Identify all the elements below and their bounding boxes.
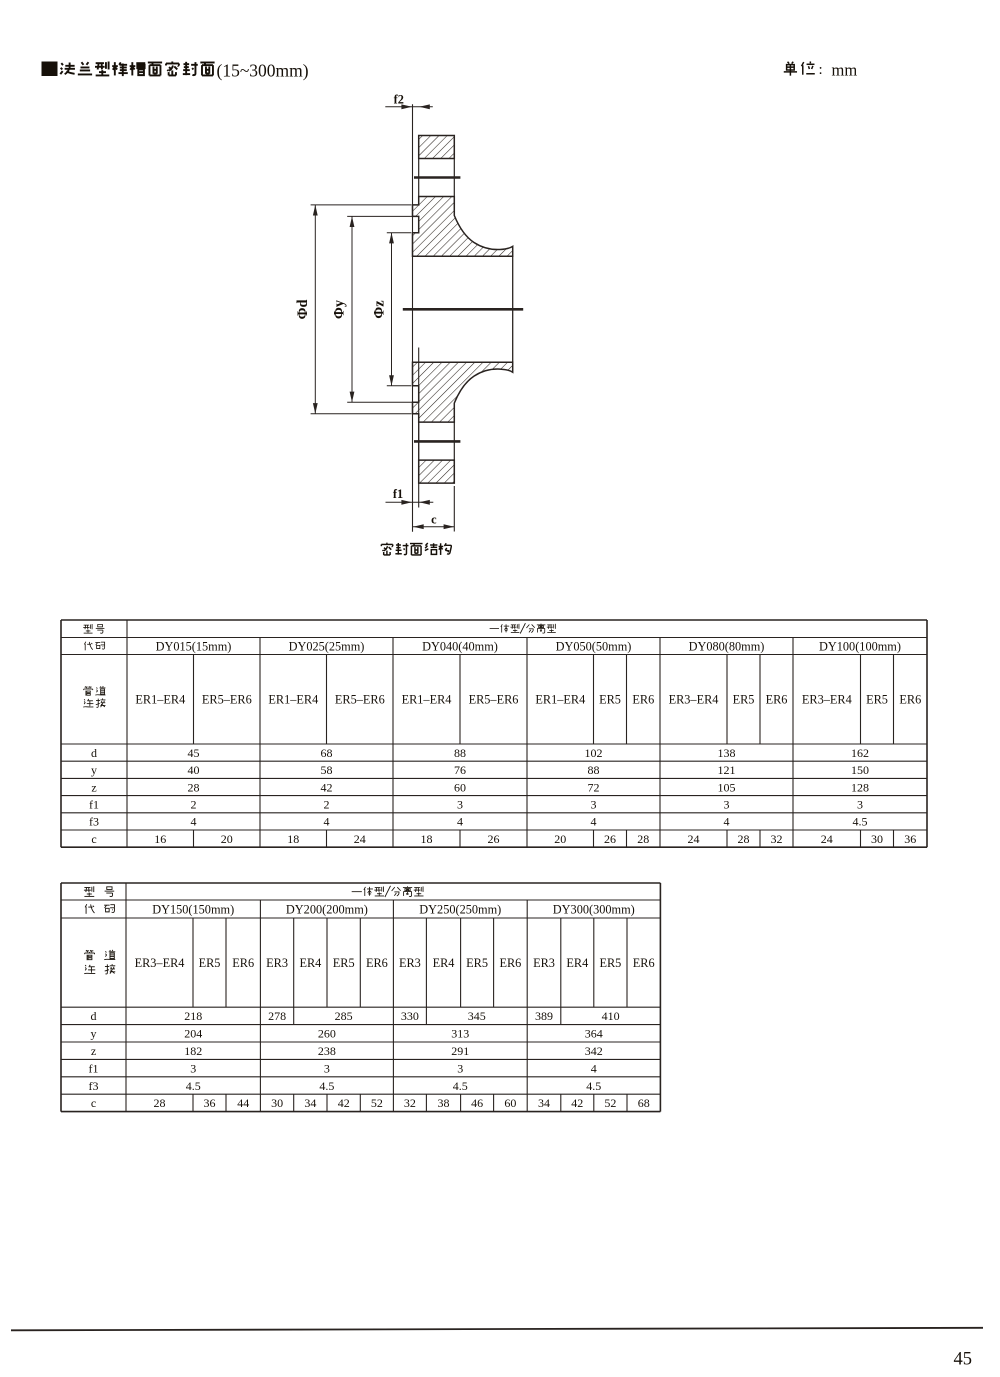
svg-text:ER6: ER6 <box>632 693 654 707</box>
svg-text:18: 18 <box>421 832 433 846</box>
svg-text:46: 46 <box>471 1096 483 1110</box>
svg-text:ER6: ER6 <box>633 956 655 970</box>
svg-text:f1: f1 <box>393 487 403 501</box>
svg-text:ER6: ER6 <box>899 693 921 707</box>
svg-text:2: 2 <box>191 798 197 812</box>
svg-text:DY015(15mm): DY015(15mm) <box>156 639 232 653</box>
svg-text:16: 16 <box>154 832 166 846</box>
svg-text:28: 28 <box>188 780 200 794</box>
svg-text:3: 3 <box>457 1061 463 1075</box>
svg-text:DY250(250mm): DY250(250mm) <box>419 902 501 916</box>
svg-text:105: 105 <box>718 780 736 794</box>
svg-text:DY040(40mm): DY040(40mm) <box>422 639 498 653</box>
svg-text:28: 28 <box>738 832 750 846</box>
svg-text:ER1–ER4: ER1–ER4 <box>402 693 452 707</box>
svg-text:291: 291 <box>451 1044 469 1058</box>
svg-text:34: 34 <box>304 1096 316 1110</box>
svg-text:z: z <box>91 1044 96 1058</box>
svg-text:26: 26 <box>488 832 500 846</box>
svg-text:ER1–ER4: ER1–ER4 <box>135 693 185 707</box>
svg-text:ER3–ER4: ER3–ER4 <box>135 956 185 970</box>
svg-text:58: 58 <box>321 763 333 777</box>
svg-text:DY300(300mm): DY300(300mm) <box>553 902 635 916</box>
svg-text:DY080(80mm): DY080(80mm) <box>689 639 765 653</box>
svg-text:4: 4 <box>591 1061 597 1075</box>
svg-text:76: 76 <box>454 763 466 777</box>
svg-text:121: 121 <box>718 763 736 777</box>
svg-text::: : <box>819 62 823 78</box>
svg-text:DY200(200mm): DY200(200mm) <box>286 902 368 916</box>
svg-text:ER3: ER3 <box>266 956 288 970</box>
svg-text:42: 42 <box>338 1096 350 1110</box>
svg-text:f3: f3 <box>89 1079 99 1093</box>
svg-text:c: c <box>431 512 437 526</box>
svg-text:313: 313 <box>451 1027 469 1041</box>
svg-text:4: 4 <box>591 815 597 829</box>
svg-text:102: 102 <box>585 746 603 760</box>
svg-text:y: y <box>91 763 97 777</box>
svg-text:204: 204 <box>184 1027 202 1041</box>
svg-text:f2: f2 <box>394 92 404 106</box>
svg-text:ER3: ER3 <box>399 956 421 970</box>
svg-text:128: 128 <box>851 780 869 794</box>
svg-text:ER4: ER4 <box>566 956 588 970</box>
svg-text:ER3–ER4: ER3–ER4 <box>669 693 719 707</box>
svg-text:218: 218 <box>184 1009 202 1023</box>
svg-text:182: 182 <box>184 1044 202 1058</box>
svg-text:72: 72 <box>588 780 600 794</box>
svg-text:y: y <box>91 1027 97 1041</box>
svg-text:d: d <box>91 1009 97 1023</box>
svg-text:238: 238 <box>318 1044 336 1058</box>
svg-text:42: 42 <box>571 1096 583 1110</box>
svg-text:345: 345 <box>468 1009 486 1023</box>
svg-text:ER1–ER4: ER1–ER4 <box>268 693 318 707</box>
svg-text:ER6: ER6 <box>366 956 388 970</box>
svg-text:z: z <box>91 780 96 794</box>
svg-text:285: 285 <box>335 1009 353 1023</box>
svg-text:ER1–ER4: ER1–ER4 <box>535 693 585 707</box>
svg-text:36: 36 <box>904 832 916 846</box>
svg-text:389: 389 <box>535 1009 553 1023</box>
svg-text:162: 162 <box>851 746 869 760</box>
svg-text:ER5: ER5 <box>199 956 221 970</box>
svg-text:26: 26 <box>604 832 616 846</box>
svg-text:3: 3 <box>591 798 597 812</box>
svg-text:138: 138 <box>718 746 736 760</box>
svg-text:3: 3 <box>857 798 863 812</box>
svg-text:ER5: ER5 <box>866 693 888 707</box>
svg-text:ER4: ER4 <box>433 956 455 970</box>
svg-text:4: 4 <box>724 815 730 829</box>
svg-text:32: 32 <box>404 1096 416 1110</box>
svg-text:4: 4 <box>457 815 463 829</box>
svg-text:410: 410 <box>602 1009 620 1023</box>
svg-text:ER4: ER4 <box>299 956 321 970</box>
svg-text:ER5–ER6: ER5–ER6 <box>469 693 519 707</box>
svg-text:330: 330 <box>401 1009 419 1023</box>
svg-text:28: 28 <box>154 1096 166 1110</box>
svg-text:20: 20 <box>221 832 233 846</box>
svg-text:4.5: 4.5 <box>453 1079 468 1093</box>
svg-text:3: 3 <box>724 798 730 812</box>
svg-text:ER3–ER4: ER3–ER4 <box>802 693 852 707</box>
svg-text:f1: f1 <box>89 1061 99 1075</box>
svg-text:mm: mm <box>832 61 858 80</box>
svg-text:Φd: Φd <box>295 300 311 320</box>
svg-text:ER5: ER5 <box>599 956 621 970</box>
svg-text:30: 30 <box>271 1096 283 1110</box>
svg-text:Φy: Φy <box>332 299 348 319</box>
svg-text:3: 3 <box>457 798 463 812</box>
svg-text:150: 150 <box>851 763 869 777</box>
svg-text:ER6: ER6 <box>232 956 254 970</box>
svg-text:20: 20 <box>554 832 566 846</box>
svg-text:ER5: ER5 <box>733 693 755 707</box>
svg-text:260: 260 <box>318 1027 336 1041</box>
svg-text:ER5–ER6: ER5–ER6 <box>202 693 252 707</box>
svg-text:ER3: ER3 <box>533 956 555 970</box>
svg-text:ER6: ER6 <box>499 956 521 970</box>
svg-text:f3: f3 <box>89 815 99 829</box>
svg-text:ER5: ER5 <box>599 693 621 707</box>
svg-text:ER5: ER5 <box>466 956 488 970</box>
svg-text:28: 28 <box>637 832 649 846</box>
svg-text:4.5: 4.5 <box>319 1079 334 1093</box>
svg-text:52: 52 <box>371 1096 383 1110</box>
svg-text:42: 42 <box>321 780 333 794</box>
svg-text:68: 68 <box>321 746 333 760</box>
svg-text:45: 45 <box>954 1350 973 1370</box>
svg-text:ER6: ER6 <box>766 693 788 707</box>
svg-text:4: 4 <box>324 815 330 829</box>
svg-text:38: 38 <box>438 1096 450 1110</box>
svg-text:ER5: ER5 <box>333 956 355 970</box>
svg-text:3: 3 <box>190 1061 196 1075</box>
svg-text:4.5: 4.5 <box>853 815 868 829</box>
svg-text:4.5: 4.5 <box>586 1079 601 1093</box>
svg-text:44: 44 <box>237 1096 249 1110</box>
svg-text:18: 18 <box>287 832 299 846</box>
svg-text:52: 52 <box>604 1096 616 1110</box>
svg-text:DY100(100mm): DY100(100mm) <box>819 639 901 653</box>
svg-text:4: 4 <box>191 815 197 829</box>
svg-text:(15~300mm): (15~300mm) <box>217 61 309 81</box>
svg-text:364: 364 <box>585 1027 603 1041</box>
svg-text:60: 60 <box>454 780 466 794</box>
svg-text:4.5: 4.5 <box>186 1079 201 1093</box>
svg-text:3: 3 <box>324 1061 330 1075</box>
svg-text:c: c <box>91 832 96 846</box>
svg-text:40: 40 <box>188 763 200 777</box>
svg-text:36: 36 <box>204 1096 216 1110</box>
svg-text:88: 88 <box>588 763 600 777</box>
svg-text:ER5–ER6: ER5–ER6 <box>335 693 385 707</box>
svg-text:DY050(50mm): DY050(50mm) <box>556 639 632 653</box>
svg-text:2: 2 <box>324 798 330 812</box>
svg-text:32: 32 <box>771 832 783 846</box>
svg-text:DY150(150mm): DY150(150mm) <box>152 902 234 916</box>
svg-text:278: 278 <box>268 1009 286 1023</box>
svg-text:c: c <box>91 1096 96 1110</box>
svg-text:24: 24 <box>821 832 833 846</box>
svg-text:24: 24 <box>688 832 700 846</box>
svg-text:DY025(25mm): DY025(25mm) <box>289 639 365 653</box>
svg-text:d: d <box>91 746 97 760</box>
svg-text:34: 34 <box>538 1096 550 1110</box>
svg-text:24: 24 <box>354 832 366 846</box>
svg-text:60: 60 <box>504 1096 516 1110</box>
svg-text:68: 68 <box>638 1096 650 1110</box>
svg-text:f1: f1 <box>89 798 99 812</box>
svg-text:Φz: Φz <box>371 300 387 319</box>
svg-text:45: 45 <box>188 746 200 760</box>
svg-text:88: 88 <box>454 746 466 760</box>
svg-text:342: 342 <box>585 1044 603 1058</box>
svg-text:30: 30 <box>871 832 883 846</box>
